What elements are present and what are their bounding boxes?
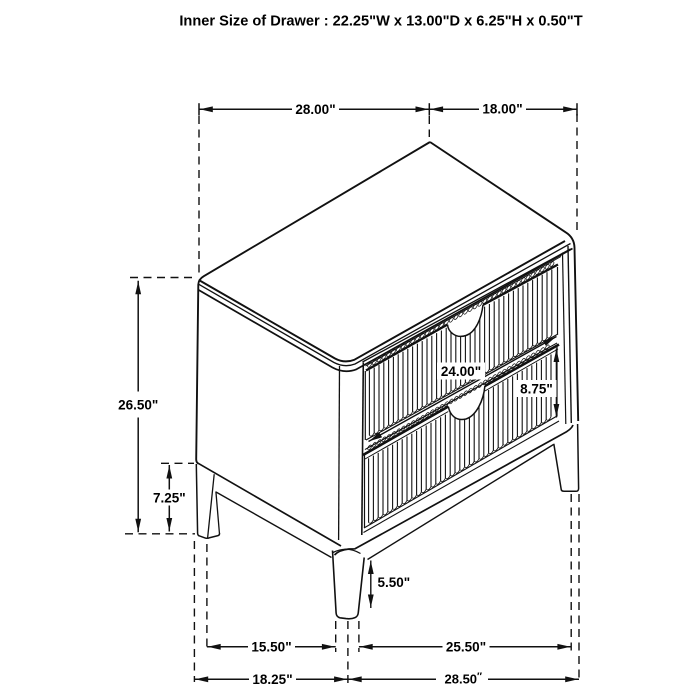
svg-text:28.00": 28.00" [295, 102, 335, 117]
svg-text:26.50": 26.50" [118, 397, 158, 412]
svg-text:15.50": 15.50" [251, 640, 291, 655]
svg-text:25.50": 25.50" [446, 640, 486, 655]
svg-text:18.25": 18.25" [252, 672, 292, 687]
svg-text:28.50″: 28.50″ [445, 670, 483, 686]
svg-text:24.00": 24.00" [441, 364, 481, 379]
svg-text:8.75": 8.75" [520, 381, 553, 396]
svg-text:18.00": 18.00" [482, 102, 522, 117]
svg-text:5.50": 5.50" [378, 575, 411, 590]
svg-text:Inner Size of Drawer : 22.25"W: Inner Size of Drawer : 22.25"W x 13.00"D… [179, 13, 582, 29]
svg-text:7.25": 7.25" [153, 490, 186, 505]
